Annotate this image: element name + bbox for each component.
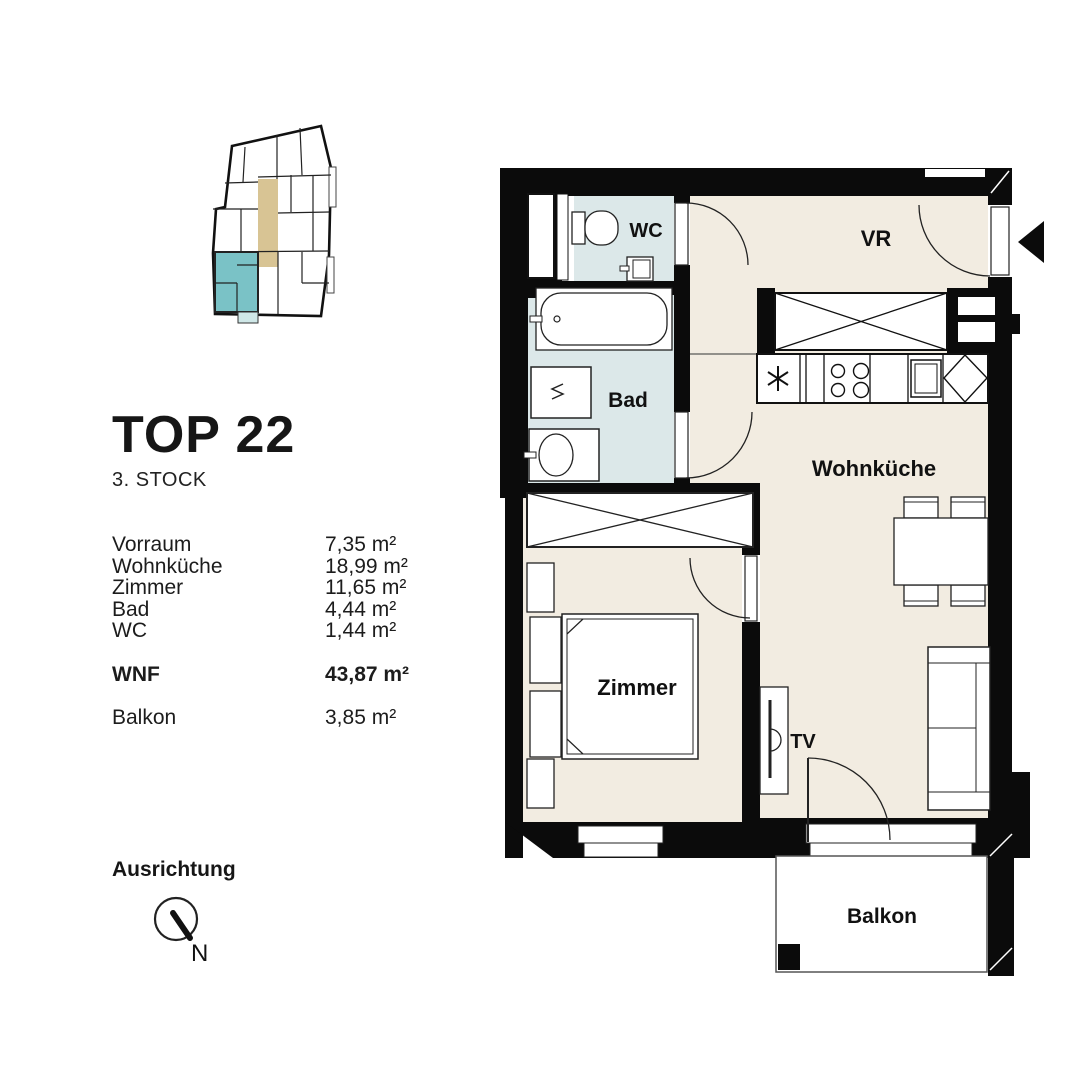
nightstand — [527, 563, 554, 612]
corridor-highlight — [258, 179, 278, 267]
balcony-row: Balkon 3,85 m² — [112, 707, 409, 729]
room-area: 18,99 m² — [325, 556, 409, 578]
label-bad: Bad — [608, 389, 648, 412]
entrance-arrow-icon — [1018, 221, 1044, 263]
bathtub-icon — [530, 288, 672, 350]
sofa — [928, 647, 990, 810]
area-row: Zimmer 11,65 m² — [112, 577, 409, 599]
area-row: Bad 4,44 m² — [112, 599, 409, 621]
toilet-icon — [572, 211, 618, 245]
bad-sink-icon — [524, 429, 599, 481]
tv-unit — [760, 687, 788, 794]
title-block: TOP 22 3. STOCK — [112, 408, 295, 492]
area-row: WC 1,44 m² — [112, 620, 409, 642]
label-vr: VR — [861, 226, 892, 251]
label-zimmer: Zimmer — [597, 675, 677, 700]
room-name: Wohnküche — [112, 556, 325, 578]
hall-wardrobe — [757, 288, 1012, 354]
shaft — [528, 194, 568, 280]
area-table: Vorraum 7,35 m² Wohnküche 18,99 m² Zimme… — [112, 534, 409, 729]
room-area: 1,44 m² — [325, 620, 409, 642]
balcony-pillar — [778, 944, 800, 970]
label-balkon: Balkon — [847, 905, 917, 928]
unit-highlight — [215, 252, 258, 323]
total-area: 43,87 m² — [325, 664, 409, 686]
area-row: Vorraum 7,35 m² — [112, 534, 409, 556]
label-wohnkueche: Wohnküche — [812, 456, 936, 481]
label-wc: WC — [629, 220, 662, 242]
page: TOP 22 3. STOCK Vorraum 7,35 m² Wohnküch… — [0, 0, 1080, 1080]
north-label: N — [191, 940, 208, 967]
chair — [951, 497, 985, 518]
nightstand — [527, 759, 554, 808]
kitchen-counter — [757, 354, 988, 403]
room-name: Bad — [112, 599, 325, 621]
orientation-label: Ausrichtung — [112, 858, 236, 882]
compass: N — [142, 886, 232, 976]
washing-machine-icon — [531, 367, 591, 418]
room-area: 11,65 m² — [325, 577, 409, 599]
balcony-label: Balkon — [112, 707, 325, 729]
total-row: WNF 43,87 m² — [112, 664, 409, 686]
building-overview-map — [205, 105, 345, 335]
label-tv: TV — [790, 731, 816, 753]
dining-table — [894, 518, 988, 585]
room-area: 4,44 m² — [325, 599, 409, 621]
wardrobe — [527, 493, 753, 547]
room-name: WC — [112, 620, 325, 642]
room-name: Zimmer — [112, 577, 325, 599]
chair — [904, 497, 938, 518]
total-label: WNF — [112, 664, 325, 686]
balcony-area: 3,85 m² — [325, 707, 409, 729]
chair — [904, 585, 938, 606]
floor-label: 3. STOCK — [112, 469, 295, 492]
floor-plan: WC VR Bad Wohnküche Zimmer TV Balkon — [495, 160, 1050, 980]
room-area: 7,35 m² — [325, 534, 409, 556]
unit-balcony-highlight — [238, 312, 258, 323]
chair — [951, 585, 985, 606]
north-needle-icon — [173, 913, 190, 938]
unit-title: TOP 22 — [112, 408, 295, 463]
room-name: Vorraum — [112, 534, 325, 556]
area-row: Wohnküche 18,99 m² — [112, 556, 409, 578]
